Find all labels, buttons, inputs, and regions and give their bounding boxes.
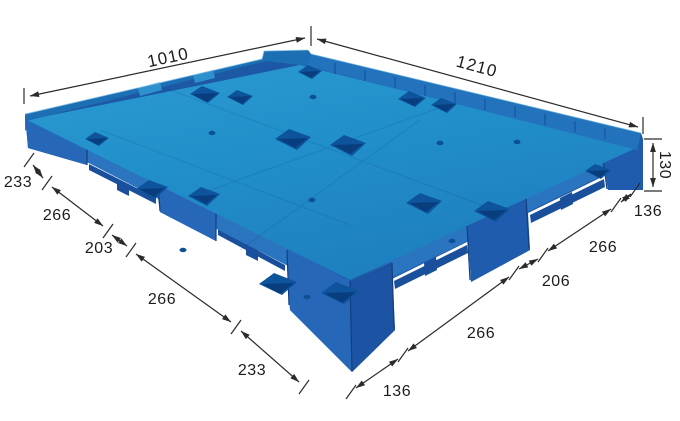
dim-label-left-203: 203 [85, 240, 113, 257]
dim-label-left-233b: 233 [238, 362, 266, 379]
pallet-dimension-figure: 1010 1210 130 233 266 203 266 233 136 26… [0, 0, 680, 421]
dim-label-130: 130 [656, 151, 673, 179]
plug-hole [310, 95, 317, 99]
dim-arrow-left-233a [33, 165, 43, 178]
dim-label-1010: 1010 [146, 44, 191, 71]
dim-arrow-right-206 [519, 259, 538, 269]
dim-label-left-266b: 266 [148, 291, 176, 308]
dim-label-right-206: 206 [542, 273, 570, 290]
dim-label-right-266a: 266 [589, 239, 617, 256]
pallet [25, 50, 643, 372]
dim-label-right-136b: 136 [383, 383, 411, 400]
dim-arrow-left-266b [136, 254, 231, 322]
dim-arrow-left-203 [112, 235, 127, 246]
plug-hole [209, 131, 216, 135]
dim-label-right-266b: 266 [467, 325, 495, 342]
plug-hole [449, 239, 456, 243]
foot-front-corner-right-face [350, 262, 395, 372]
diagram-canvas: 1010 1210 130 233 266 203 266 233 136 26… [0, 0, 680, 421]
plug-hole [180, 248, 187, 252]
plug-hole [437, 141, 444, 145]
dim-label-1210: 1210 [454, 52, 499, 81]
dim-label-right-136a: 136 [634, 203, 662, 220]
dim-arrow-right-136a [621, 194, 631, 202]
dim-label-left-266a: 266 [43, 207, 71, 224]
plug-hole [309, 198, 316, 202]
dim-label-left-233a: 233 [4, 174, 32, 191]
plug-hole [514, 140, 521, 144]
plug-hole [304, 295, 311, 299]
